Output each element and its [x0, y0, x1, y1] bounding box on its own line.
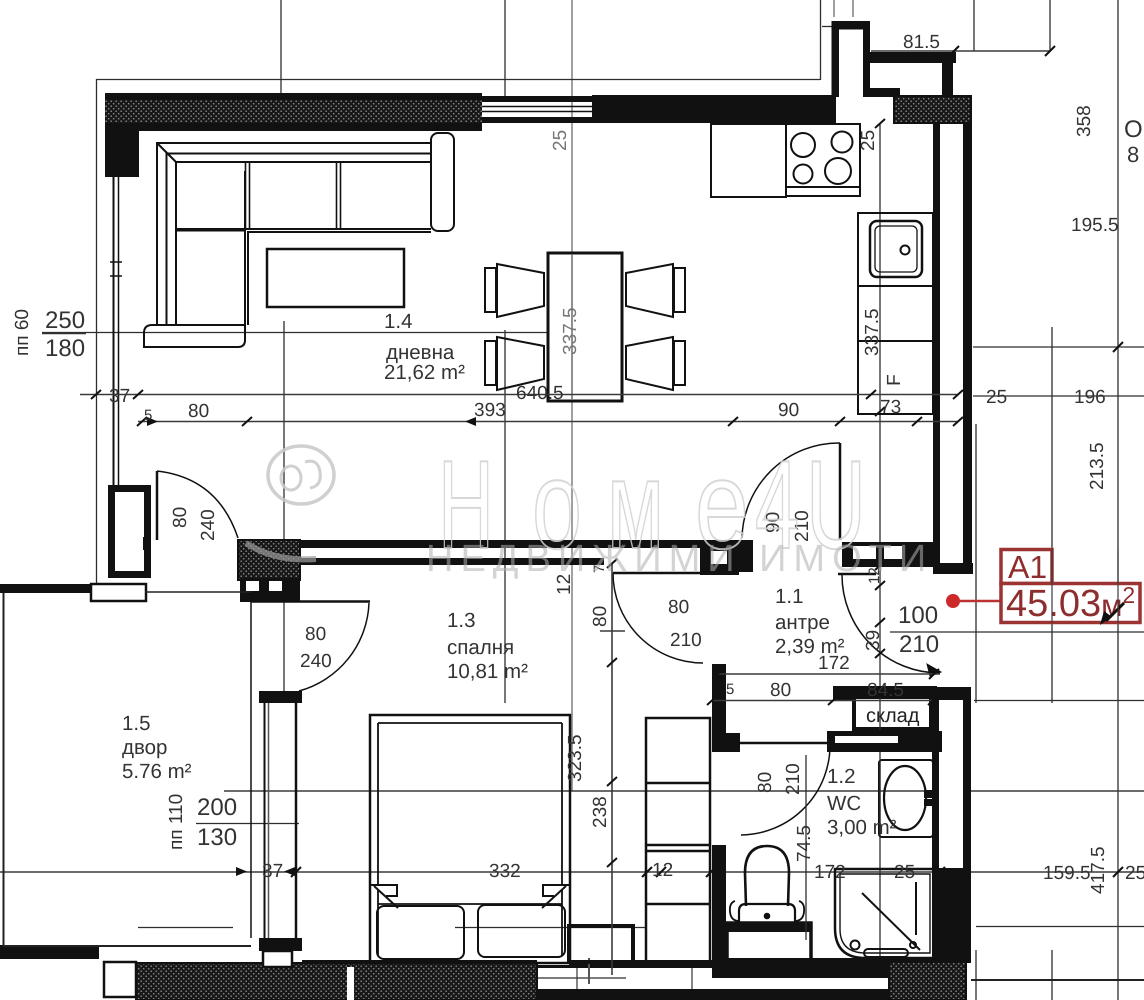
- svg-text:80: 80: [770, 680, 791, 701]
- svg-text:332: 332: [489, 861, 521, 882]
- svg-text:пп 60: пп 60: [12, 309, 33, 356]
- svg-text:172: 172: [818, 653, 850, 674]
- svg-text:81.5: 81.5: [903, 32, 940, 53]
- svg-text:240: 240: [300, 651, 332, 672]
- svg-text:73: 73: [880, 397, 901, 418]
- svg-text:210: 210: [670, 630, 702, 651]
- svg-text:250: 250: [45, 307, 85, 334]
- svg-text:WC: WC: [827, 792, 861, 815]
- svg-text:F: F: [884, 374, 905, 386]
- svg-text:О: О: [1124, 116, 1143, 143]
- svg-text:1.5: 1.5: [122, 712, 151, 735]
- svg-text:80: 80: [668, 597, 689, 618]
- svg-text:200: 200: [197, 794, 237, 821]
- svg-text:1.2: 1.2: [827, 765, 856, 788]
- svg-text:3,00 m²: 3,00 m²: [827, 816, 897, 839]
- svg-text:74.5: 74.5: [794, 825, 815, 862]
- svg-text:337.5: 337.5: [560, 307, 581, 355]
- svg-text:100: 100: [898, 602, 938, 629]
- svg-text:393: 393: [474, 400, 506, 421]
- svg-text:1.4: 1.4: [384, 310, 413, 333]
- svg-text:склад: склад: [866, 705, 920, 727]
- svg-text:10,81 m²: 10,81 m²: [447, 660, 528, 683]
- svg-text:спалня: спалня: [447, 636, 514, 659]
- svg-text:172: 172: [814, 862, 846, 883]
- svg-text:337.5: 337.5: [862, 308, 883, 356]
- svg-text:A1: A1: [1008, 549, 1047, 585]
- svg-text:21,62 m²: 21,62 m²: [384, 361, 465, 384]
- svg-text:25: 25: [986, 387, 1007, 408]
- svg-text:210: 210: [899, 631, 939, 658]
- svg-text:1.1: 1.1: [775, 585, 804, 608]
- svg-text:37: 37: [262, 861, 283, 882]
- svg-text:39: 39: [863, 630, 884, 651]
- svg-text:84.5: 84.5: [867, 680, 904, 701]
- svg-text:80: 80: [170, 507, 191, 528]
- svg-text:25: 25: [894, 862, 915, 883]
- svg-text:358: 358: [1074, 105, 1095, 137]
- svg-text:80: 80: [305, 624, 326, 645]
- svg-text:25: 25: [1125, 863, 1144, 884]
- svg-text:5: 5: [144, 407, 152, 424]
- svg-text:37: 37: [109, 386, 130, 407]
- svg-text:12: 12: [652, 860, 673, 881]
- svg-text:5.76 m²: 5.76 m²: [122, 760, 192, 783]
- svg-text:130: 130: [197, 824, 237, 851]
- svg-text:196: 196: [1074, 387, 1106, 408]
- svg-text:двор: двор: [122, 736, 167, 759]
- svg-text:1.3: 1.3: [447, 609, 476, 632]
- svg-text:90: 90: [778, 400, 799, 421]
- svg-text:238: 238: [590, 796, 611, 828]
- svg-text:пп 110: пп 110: [166, 794, 187, 850]
- svg-text:25: 25: [550, 130, 571, 151]
- svg-text:8: 8: [1127, 142, 1139, 167]
- svg-text:180: 180: [45, 335, 85, 362]
- svg-text:80: 80: [755, 772, 776, 793]
- svg-text:640.5: 640.5: [516, 383, 564, 404]
- svg-text:25: 25: [858, 130, 879, 151]
- svg-text:80: 80: [188, 401, 209, 422]
- svg-text:213.5: 213.5: [1087, 442, 1108, 490]
- svg-text:240: 240: [198, 509, 219, 541]
- svg-text:антре: антре: [775, 611, 830, 634]
- svg-text:417.5: 417.5: [1088, 846, 1109, 894]
- svg-text:210: 210: [783, 763, 804, 795]
- svg-text:80: 80: [590, 606, 611, 627]
- svg-text:195.5: 195.5: [1071, 215, 1119, 236]
- svg-text:159.5: 159.5: [1043, 863, 1091, 884]
- svg-text:323.5: 323.5: [565, 734, 586, 782]
- svg-text:45.03м2: 45.03м2: [1006, 582, 1135, 625]
- svg-text:НЕДВИЖИМИ ИМОТИ: НЕДВИЖИМИ ИМОТИ: [426, 538, 933, 580]
- svg-text:5: 5: [726, 681, 734, 698]
